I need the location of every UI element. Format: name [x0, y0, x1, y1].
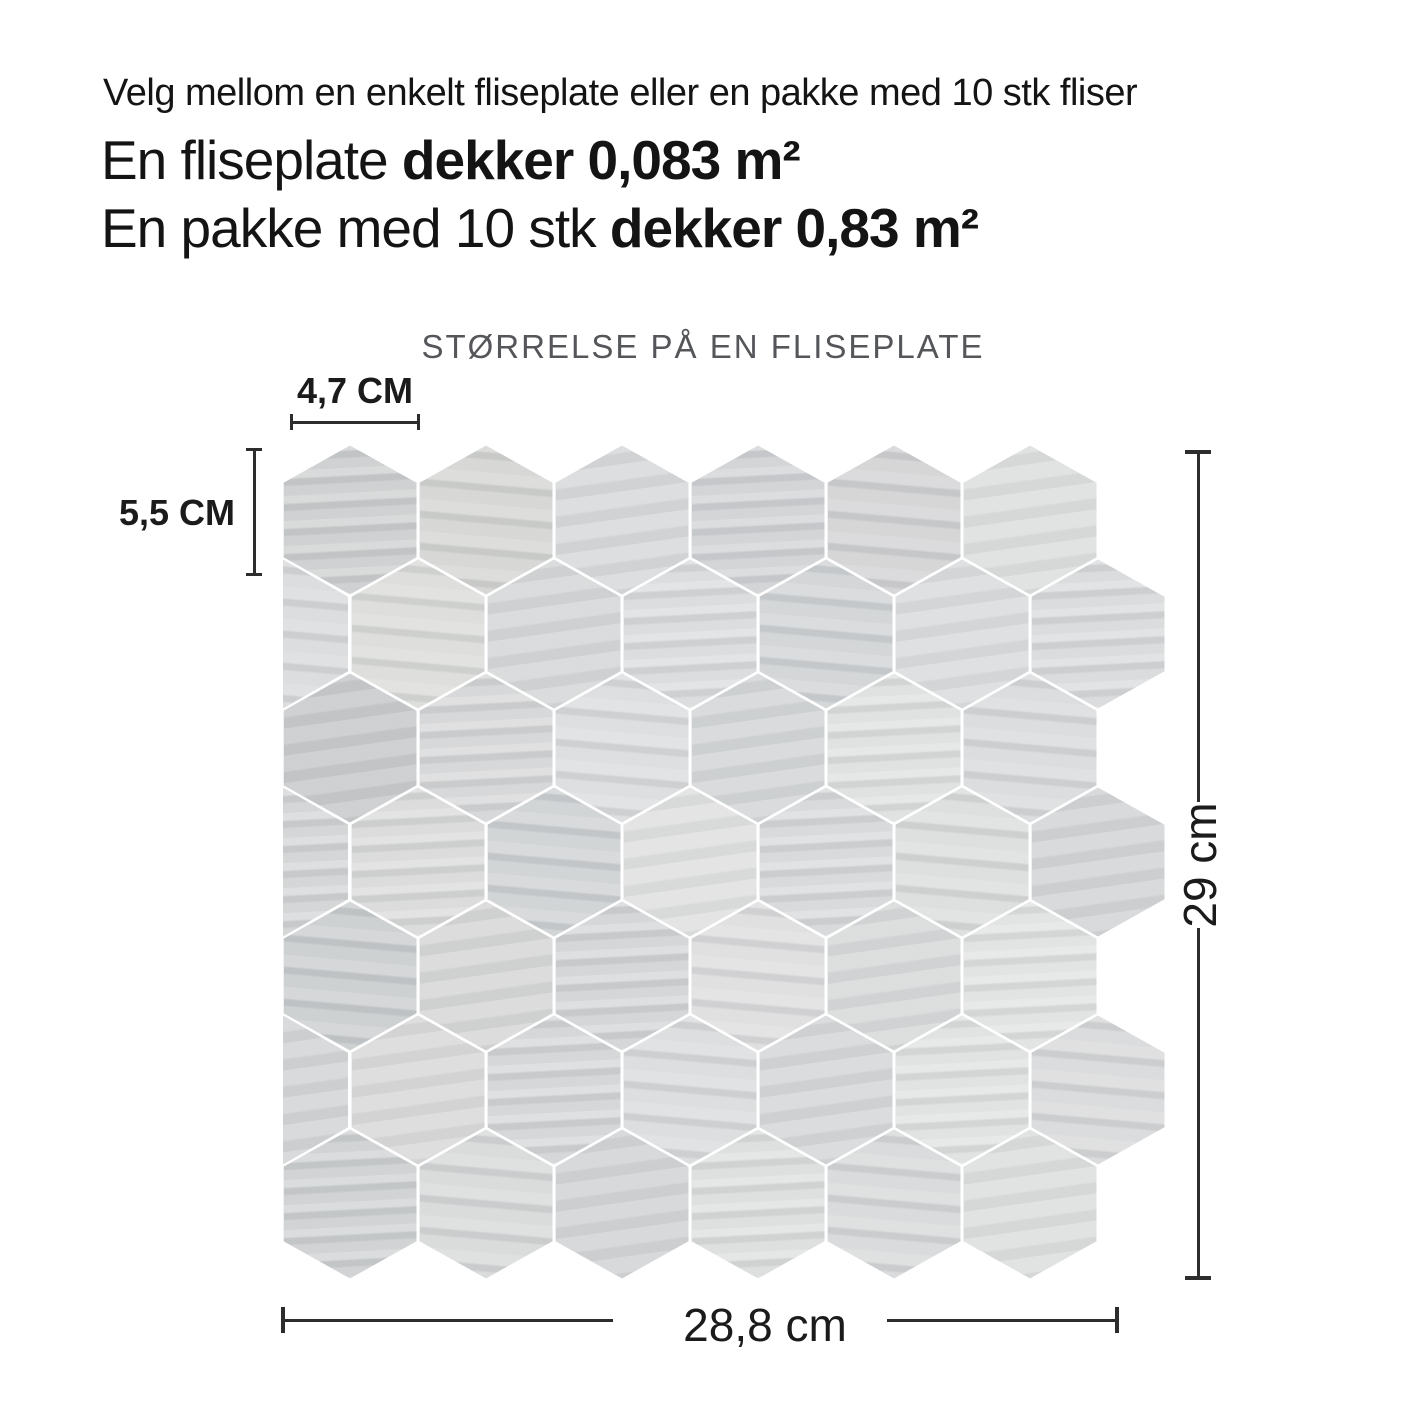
ruler-tick: [1115, 1307, 1119, 1333]
ruler-line: [1197, 450, 1200, 802]
ruler-tick: [1185, 450, 1211, 454]
ruler-tick: [281, 1307, 285, 1333]
coverage-single-prefix: En fliseplate: [101, 129, 402, 191]
tile-height-ruler: [246, 448, 262, 576]
intro-line: Velg mellom en enkelt fliseplate eller e…: [103, 72, 1137, 115]
coverage-line-single: En fliseplate dekker 0,083 m²: [101, 128, 800, 192]
ruler-line: [253, 448, 256, 576]
ruler-line: [281, 1319, 613, 1322]
sheet-height-label: 29 cm: [1173, 765, 1223, 965]
tile-width-ruler: [290, 414, 420, 430]
sheet-width-label: 28,8 cm: [595, 1298, 935, 1352]
ruler-tick: [417, 414, 420, 430]
diagram-title: STØRRELSE PÅ EN FLISEPLATE: [0, 328, 1406, 366]
coverage-pack-prefix: En pakke med 10 stk: [101, 197, 610, 259]
ruler-tick: [246, 448, 262, 451]
ruler-tick: [1185, 1276, 1211, 1280]
ruler-tick: [290, 414, 293, 430]
coverage-pack-value: dekker 0,83 m²: [610, 197, 978, 259]
coverage-line-pack: En pakke med 10 stk dekker 0,83 m²: [101, 196, 978, 260]
tile-height-label: 5,5 CM: [60, 492, 235, 534]
tile-width-label: 4,7 CM: [280, 370, 430, 412]
ruler-tick: [246, 573, 262, 576]
ruler-line: [1197, 928, 1200, 1280]
coverage-single-value: dekker 0,083 m²: [402, 129, 800, 191]
ruler-line: [290, 421, 420, 424]
tile-sheet-image: [282, 444, 1166, 1280]
